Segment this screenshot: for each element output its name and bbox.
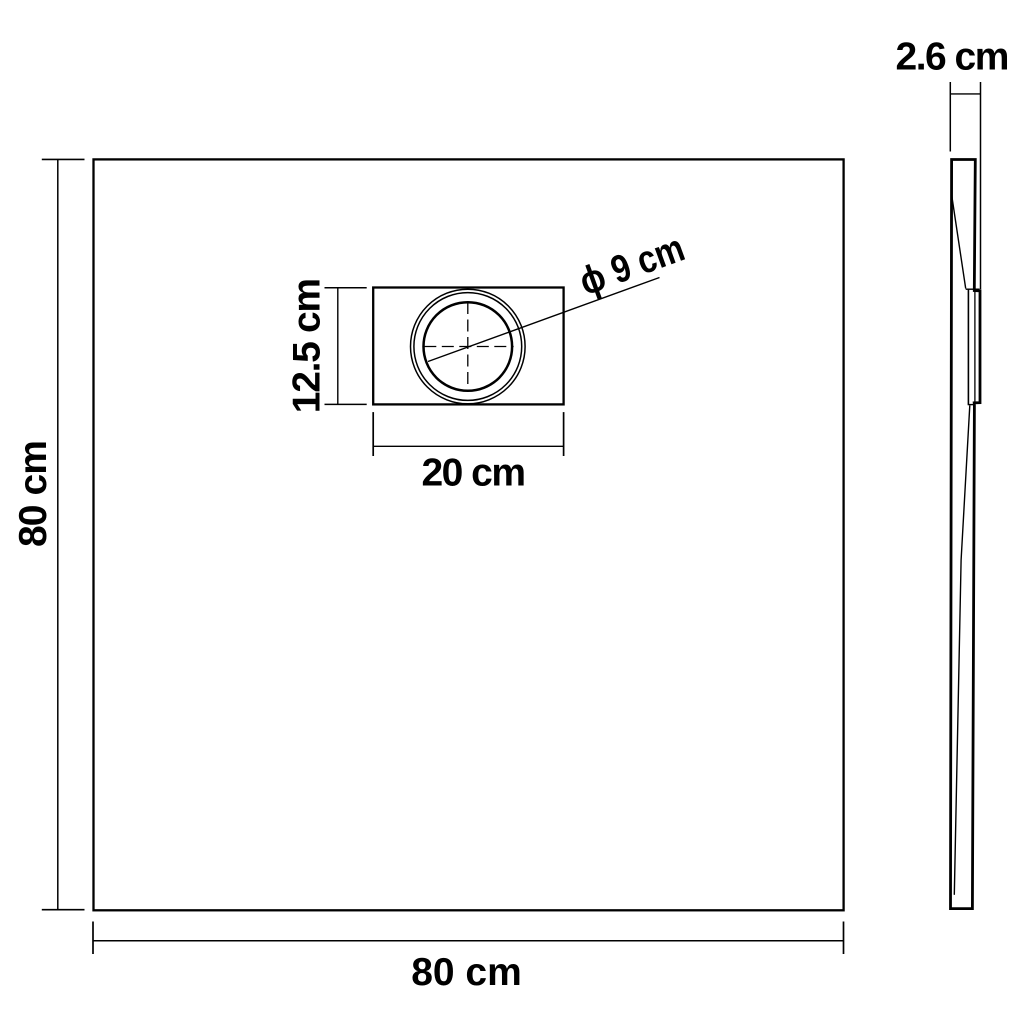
svg-text:12.5 cm: 12.5 cm	[286, 279, 329, 413]
svg-text:80 cm: 80 cm	[411, 951, 522, 994]
svg-text:80 cm: 80 cm	[12, 441, 55, 547]
svg-text:20 cm: 20 cm	[421, 451, 524, 494]
svg-text:2.6 cm: 2.6 cm	[896, 35, 1008, 78]
